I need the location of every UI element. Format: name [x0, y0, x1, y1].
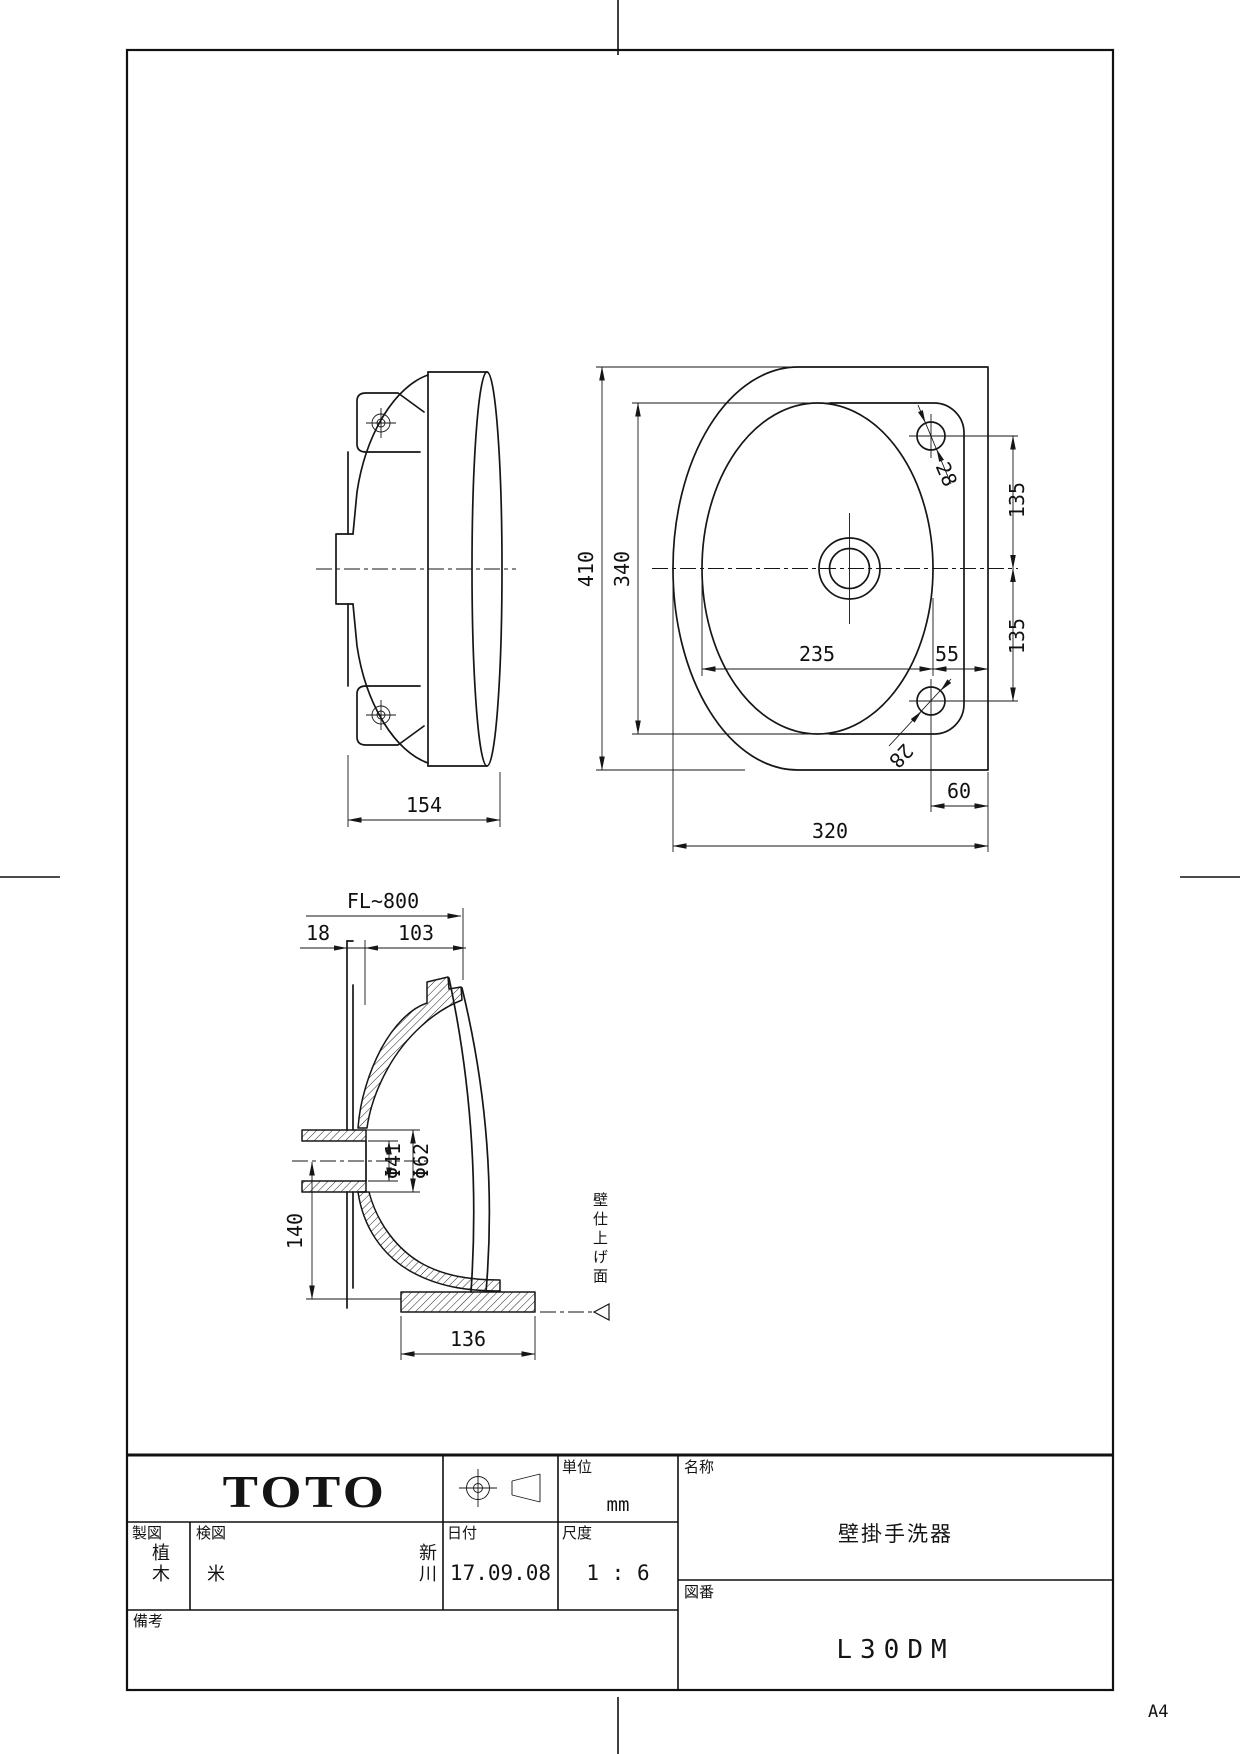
- unit-label: 単位: [562, 1460, 592, 1475]
- sheet-size-label: A4: [1148, 1702, 1168, 1722]
- dim-hole-dia-top-label: 28: [931, 458, 963, 490]
- dim-front-offset-label: 103: [398, 921, 434, 945]
- dim-hole-offset-bottom-label: 135: [1005, 618, 1029, 654]
- side-view: 154: [316, 372, 516, 827]
- dim-drain-inner-dia-label: Φ41: [381, 1143, 405, 1179]
- dim-deck-width-label: 55: [935, 642, 959, 666]
- dim-hole-offset-top-label: 135: [1005, 482, 1029, 518]
- checker-value-2: 新川: [413, 1543, 439, 1585]
- drawing-sheet: 154 28 28: [0, 0, 1240, 1754]
- name-label: 名称: [684, 1460, 714, 1475]
- wall-surface-triangle-icon: [594, 1304, 609, 1320]
- scale-value: 1 : 6: [560, 1556, 676, 1590]
- dim-hole-to-edge-label: 60: [947, 779, 971, 803]
- dim-floor-height-label: FL~800: [347, 889, 419, 913]
- plan-view: 28 28 410 340 235 55 135 135 60 320: [574, 367, 1029, 852]
- number-value: L30DM: [680, 1632, 1111, 1668]
- checker-value-1: 米: [207, 1560, 225, 1586]
- drafter-value: 植木: [146, 1543, 172, 1585]
- scale-label: 尺度: [562, 1526, 592, 1541]
- number-label: 図番: [684, 1585, 714, 1600]
- dim-drain-outer-dia-label: Φ62: [409, 1143, 433, 1179]
- bolt-hole-icon: [366, 700, 396, 730]
- bolt-hole-icon: [366, 408, 396, 438]
- dim-basin-height-label: 340: [610, 551, 634, 587]
- toto-logo: TOTO: [150, 1462, 461, 1520]
- drafter-label: 製図: [132, 1526, 162, 1541]
- dim-back-offset-label: 18: [306, 921, 330, 945]
- date-value: 17.09.08: [445, 1556, 556, 1590]
- date-label: 日付: [447, 1526, 477, 1541]
- remarks-label: 備考: [133, 1614, 163, 1629]
- dim-side-depth-label: 154: [406, 793, 442, 817]
- dim-hole-dia-bottom-label: 28: [884, 739, 918, 773]
- projection-symbol-icon: [459, 1469, 540, 1507]
- dim-overall-height-label: 410: [574, 551, 598, 587]
- dim-basin-width-label: 235: [799, 642, 835, 666]
- section-view: FL~800 18 103 Φ62: [283, 889, 609, 1360]
- dim-base-width-label: 136: [450, 1327, 486, 1351]
- checker-label: 検図: [196, 1526, 226, 1541]
- name-value: 壁掛手洗器: [680, 1518, 1111, 1548]
- unit-value: mm: [560, 1492, 676, 1518]
- dim-overall-width-label: 320: [812, 819, 848, 843]
- wall-surface-label: 壁仕上げ面: [590, 1192, 611, 1287]
- dim-drain-depth-label: 140: [283, 1213, 307, 1249]
